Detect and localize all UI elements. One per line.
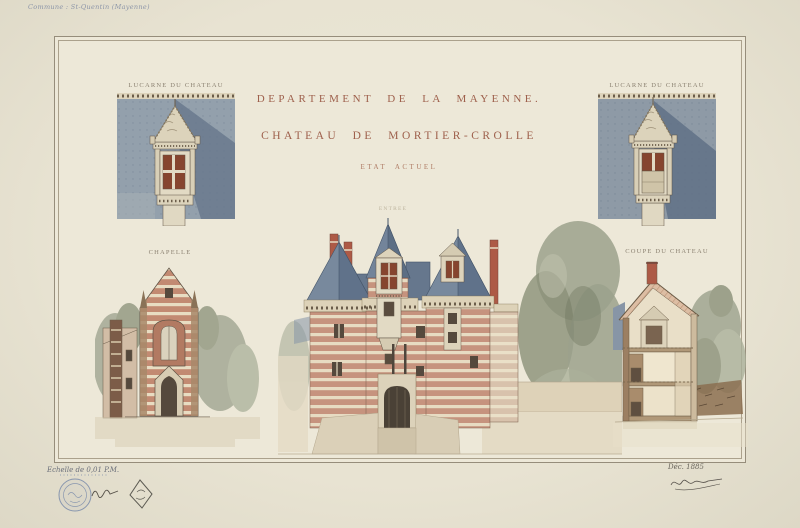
buttress-left xyxy=(140,294,147,416)
left-wall-section xyxy=(623,318,629,421)
ground xyxy=(95,417,260,447)
stamps-drawing xyxy=(52,468,157,522)
chateau-drawing xyxy=(278,216,622,460)
caption-lucarne-right: LUCARNE DU CHATEAU xyxy=(597,82,717,89)
chapelle-drawing xyxy=(95,258,260,453)
inventory-scribble xyxy=(92,490,118,497)
figure-chapelle xyxy=(95,258,260,453)
caption-chapelle: CHAPELLE xyxy=(120,249,220,256)
caption-lucarne-left: LUCARNE DU CHATEAU xyxy=(116,82,236,89)
archival-plate-sheet: Commune : St-Quentin (Mayenne) DEPARTEME… xyxy=(0,0,800,528)
figure-coupe xyxy=(613,256,748,456)
commune-handwritten-note: Commune : St-Quentin (Mayenne) xyxy=(28,3,150,11)
lucarne-right-drawing xyxy=(598,93,716,226)
date-handwritten-note: Déc. 1885 xyxy=(668,463,704,471)
buttress-right xyxy=(191,294,198,416)
caption-entree: ENTREE xyxy=(368,206,418,212)
right-curtain-wall xyxy=(490,312,518,422)
floor-slab-2 xyxy=(623,348,695,352)
coupe-drawing xyxy=(613,256,748,456)
caption-coupe: COUPE DU CHATEAU xyxy=(612,248,722,255)
portal-door xyxy=(161,376,177,416)
figure-chateau-entree xyxy=(278,216,622,460)
pinnacle-left xyxy=(140,290,147,308)
architect-signature xyxy=(668,473,728,493)
right-wall xyxy=(691,314,697,421)
signature-flourish xyxy=(668,473,728,493)
right-tower-stone-strip xyxy=(444,308,461,350)
gable-window xyxy=(165,288,173,298)
circular-ink-stamp xyxy=(59,479,91,511)
stamps-group xyxy=(52,468,157,522)
lozenge-stamp xyxy=(130,480,152,508)
chapel-facade xyxy=(140,268,198,416)
side-annex xyxy=(103,320,137,418)
figure-lucarne-left xyxy=(117,93,235,226)
chimney xyxy=(647,262,657,284)
annex-chimney xyxy=(110,320,122,418)
earth-bank xyxy=(691,380,743,416)
pinnacle-right xyxy=(191,290,198,308)
background-trees xyxy=(689,285,746,394)
lucarne-left-drawing xyxy=(117,93,235,226)
section-building xyxy=(619,262,699,421)
figure-lucarne-right xyxy=(598,93,716,226)
